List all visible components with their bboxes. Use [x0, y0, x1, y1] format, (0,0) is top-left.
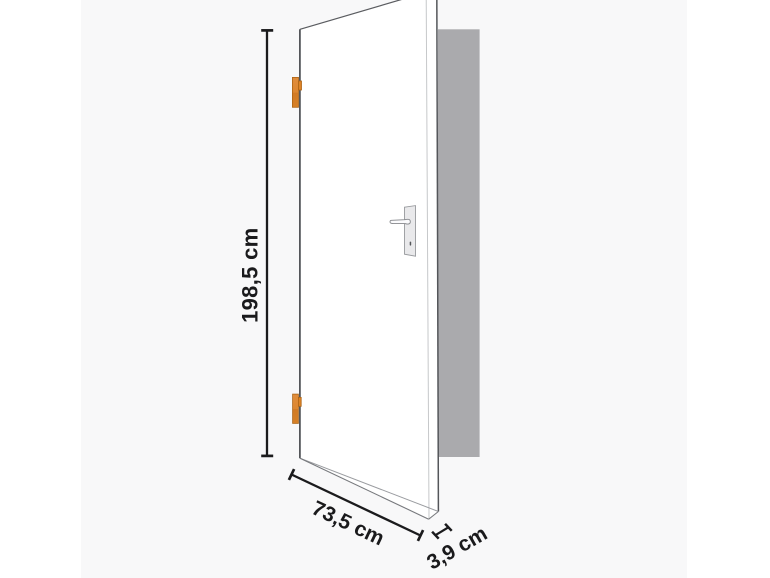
- svg-text:198,5 cm: 198,5 cm: [238, 228, 263, 323]
